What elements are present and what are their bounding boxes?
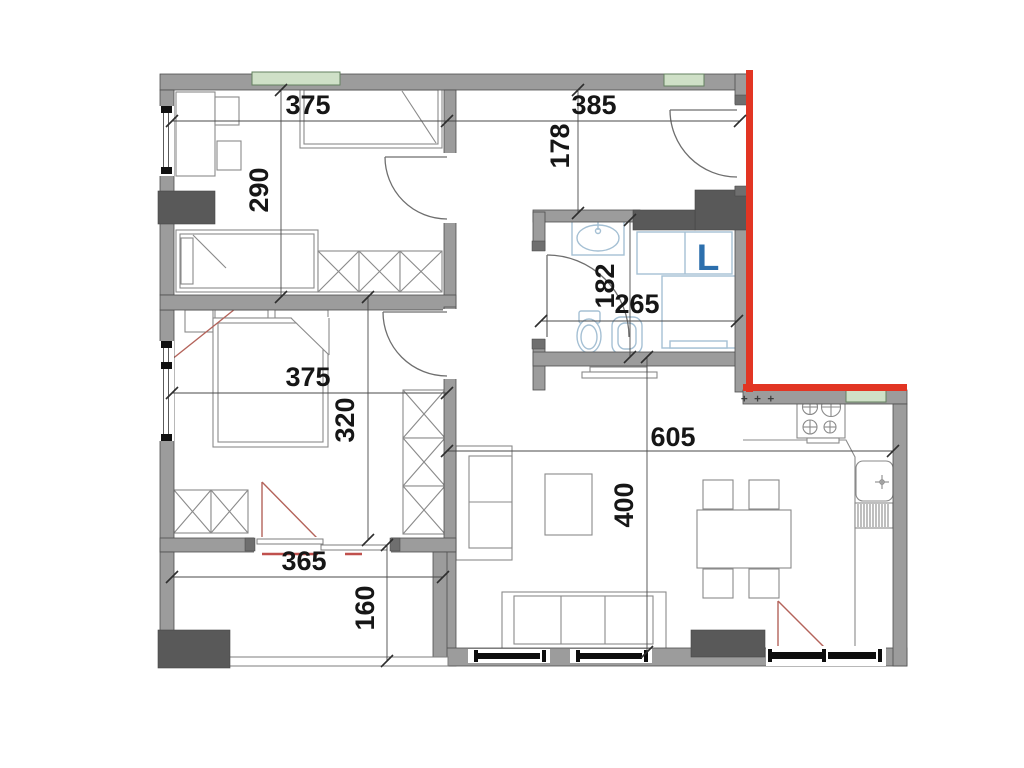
dim-kids-height: 290 <box>244 167 274 212</box>
wall-kids-master <box>160 295 456 310</box>
wall-kitchen-right <box>893 404 907 666</box>
floor-plan-drawing: 375 385 178 290 182 265 375 320 605 400 … <box>0 0 1024 768</box>
top-window-hall <box>664 74 704 86</box>
highlighted-wall-right <box>746 70 753 392</box>
dim-living-height: 400 <box>609 482 639 527</box>
hall-sideboard <box>582 367 657 378</box>
master-bedroom-furniture <box>174 310 445 534</box>
wardrobe <box>318 251 442 292</box>
desk <box>176 92 215 176</box>
coffee-table <box>545 474 592 535</box>
floor-plan: 375 385 178 290 182 265 375 320 605 400 … <box>0 0 1024 768</box>
wardrobe <box>174 490 248 533</box>
highlighted-wall-kitchen <box>743 384 907 391</box>
column <box>158 630 230 668</box>
top-window-kids <box>252 72 340 85</box>
washbasin <box>572 219 624 255</box>
toilet <box>577 311 601 353</box>
dim-master-width: 375 <box>285 362 330 392</box>
dining-table <box>697 510 791 568</box>
dim-kids-width: 375 <box>285 90 330 120</box>
dim-master-height: 320 <box>330 397 360 442</box>
drainer <box>855 503 893 528</box>
laundry-label: L <box>697 237 720 278</box>
wall-bath-bottom <box>533 352 743 366</box>
bidet <box>612 317 642 354</box>
dim-balcony-height: 160 <box>350 585 380 630</box>
nightstand <box>185 310 213 332</box>
column <box>158 191 215 224</box>
dining-set <box>697 480 791 598</box>
wall-top <box>160 74 750 90</box>
armchair <box>456 446 512 560</box>
vent-marks: + + + <box>741 392 774 405</box>
dim-hall-width: 385 <box>571 90 616 120</box>
dim-bath-width: 265 <box>614 289 659 319</box>
wall-balcony-right <box>433 552 447 659</box>
dim-hall-height: 178 <box>545 123 575 168</box>
chair <box>703 569 733 598</box>
towel-rail <box>670 341 727 348</box>
chair <box>703 480 733 509</box>
master-room-door <box>383 312 447 376</box>
column <box>691 630 765 657</box>
single-bed <box>176 230 318 292</box>
chair <box>749 569 779 598</box>
living-room-furniture <box>456 446 791 649</box>
kitchen-sink <box>856 461 893 501</box>
dim-living-width: 605 <box>650 422 695 452</box>
wall-bath-top <box>533 210 640 222</box>
desk-chair <box>217 141 241 170</box>
wall-block <box>633 210 695 230</box>
wardrobe <box>403 390 445 534</box>
kids-room-door <box>385 157 447 219</box>
chair <box>749 480 779 509</box>
sofa <box>502 592 666 649</box>
dim-balcony-width: 365 <box>281 546 326 576</box>
